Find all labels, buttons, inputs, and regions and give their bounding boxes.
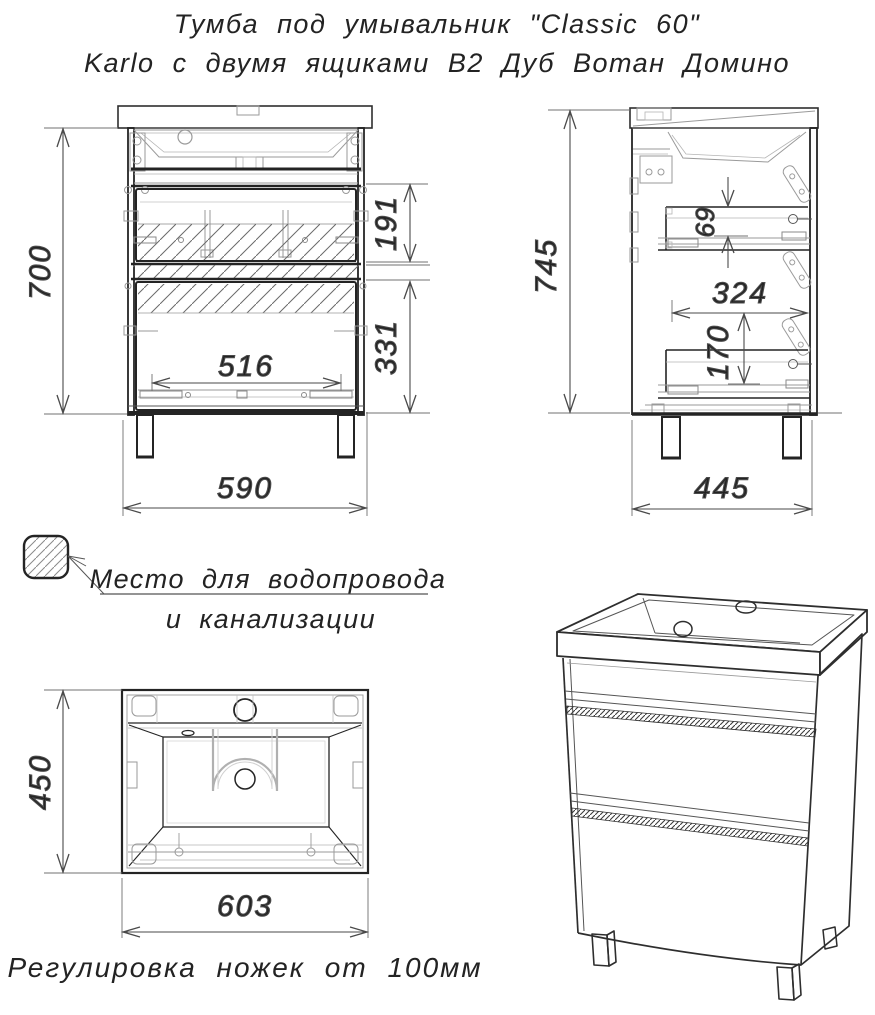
dim-side-height: 745 (530, 238, 563, 294)
title-line-1: Тумба под умывальник "Classic 60" (174, 9, 700, 39)
dim-front-height: 700 (24, 244, 57, 300)
dim-side-gap: 69 (690, 207, 720, 238)
top-view (122, 690, 368, 873)
dim-front-inner-width: 516 (218, 350, 274, 383)
legend-line-1: Место для водопровода (90, 564, 447, 594)
dim-front-width: 590 (217, 472, 273, 505)
front-view (118, 106, 372, 457)
title-line-2: Karlo с двумя ящиками В2 Дуб Вотан Домин… (84, 48, 790, 78)
front-left-leg (137, 415, 153, 457)
dim-top-width: 603 (217, 890, 273, 923)
drawing-sheet: Тумба под умывальник "Classic 60" Karlo … (0, 0, 875, 1015)
dim-front-drawer2: 331 (370, 319, 403, 375)
front-sink-slab (118, 106, 372, 128)
title-block: Тумба под умывальник "Classic 60" Karlo … (84, 9, 790, 78)
dim-front-drawer1: 191 (370, 195, 403, 251)
drawer2-groove (572, 808, 808, 846)
front-right-leg (338, 415, 354, 457)
side-front-leg (662, 417, 680, 458)
dim-side-drawer-height: 170 (702, 324, 735, 380)
footnote-leg-adjustment: Регулировка ножек от 100мм (7, 952, 482, 983)
plumbing-cutout-hatch-1 (138, 224, 354, 260)
overflow-hole (178, 130, 192, 144)
dim-side-inner-depth: 324 (712, 277, 768, 310)
legend: Место для водопровода и канализации (24, 536, 446, 634)
side-back-leg (783, 417, 801, 458)
legend-line-2: и канализации (166, 604, 376, 634)
dim-side-depth: 445 (694, 472, 750, 505)
plumbing-cutout-hatch-2 (133, 265, 359, 278)
plumbing-area-swatch-icon (24, 536, 68, 578)
perspective-view (557, 594, 867, 1000)
technical-drawing: Тумба под умывальник "Classic 60" Karlo … (0, 0, 875, 1015)
plumbing-cutout-hatch-3 (138, 284, 354, 313)
dim-top-depth: 450 (24, 754, 57, 810)
